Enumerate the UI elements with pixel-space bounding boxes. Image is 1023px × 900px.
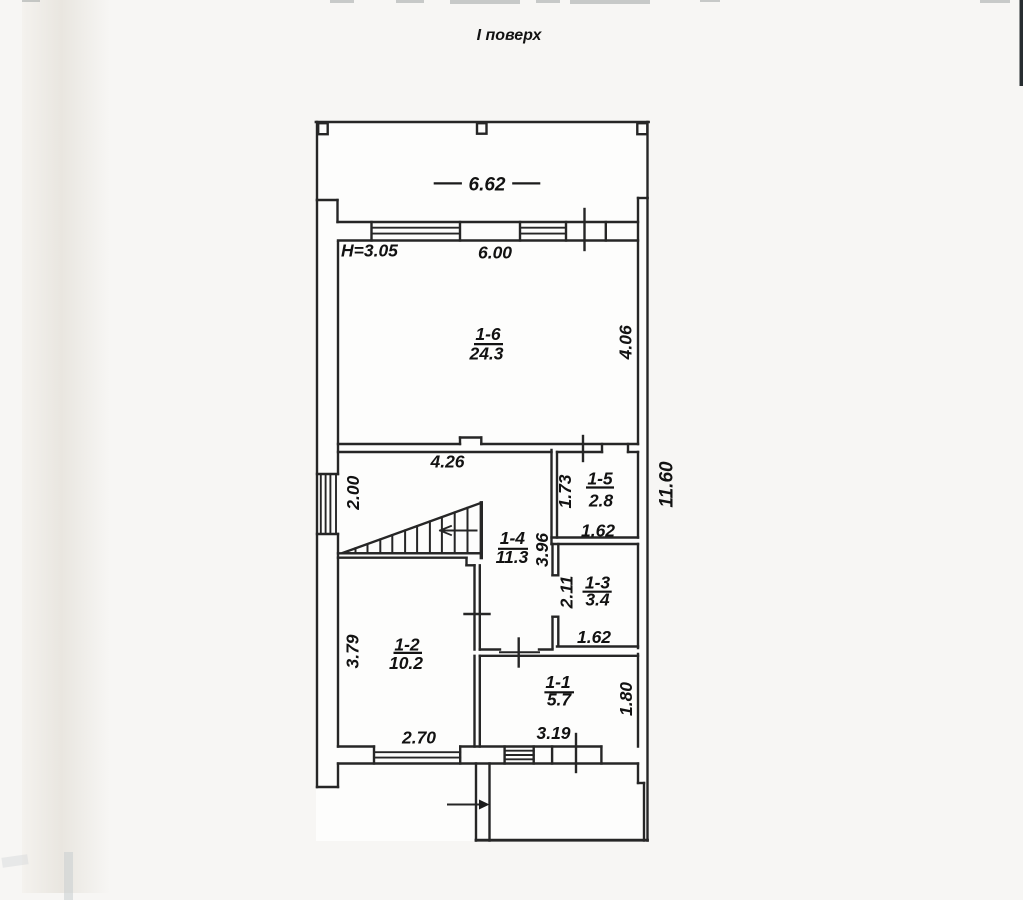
svg-text:1.62: 1.62 <box>581 521 615 541</box>
svg-text:1-6: 1-6 <box>475 324 501 344</box>
svg-text:24.3: 24.3 <box>468 344 503 364</box>
svg-text:2.11: 2.11 <box>557 576 577 610</box>
svg-text:1-5: 1-5 <box>587 469 613 489</box>
svg-text:3.4: 3.4 <box>585 589 610 609</box>
svg-text:6.62: 6.62 <box>469 175 506 196</box>
svg-text:11.3: 11.3 <box>496 547 529 567</box>
svg-text:1.73: 1.73 <box>555 474 575 508</box>
svg-text:1-4: 1-4 <box>500 528 526 548</box>
svg-text:5.7: 5.7 <box>547 690 573 710</box>
svg-text:10.2: 10.2 <box>389 653 423 673</box>
svg-text:4.06: 4.06 <box>616 325 636 360</box>
svg-text:1.80: 1.80 <box>616 682 636 716</box>
svg-text:2.70: 2.70 <box>401 727 436 747</box>
svg-text:3.79: 3.79 <box>343 634 363 668</box>
svg-text:2.00: 2.00 <box>343 475 363 510</box>
svg-text:І поверх: І поверх <box>477 27 543 44</box>
svg-text:6.00: 6.00 <box>478 243 512 263</box>
svg-text:11.60: 11.60 <box>657 461 678 508</box>
svg-text:1.62: 1.62 <box>577 627 611 647</box>
svg-text:3.96: 3.96 <box>532 533 552 567</box>
svg-text:H=3.05: H=3.05 <box>341 241 398 261</box>
svg-text:4.26: 4.26 <box>429 452 464 472</box>
svg-text:2.8: 2.8 <box>588 491 614 511</box>
svg-text:1-2: 1-2 <box>394 634 420 654</box>
svg-text:3.19: 3.19 <box>536 723 570 743</box>
